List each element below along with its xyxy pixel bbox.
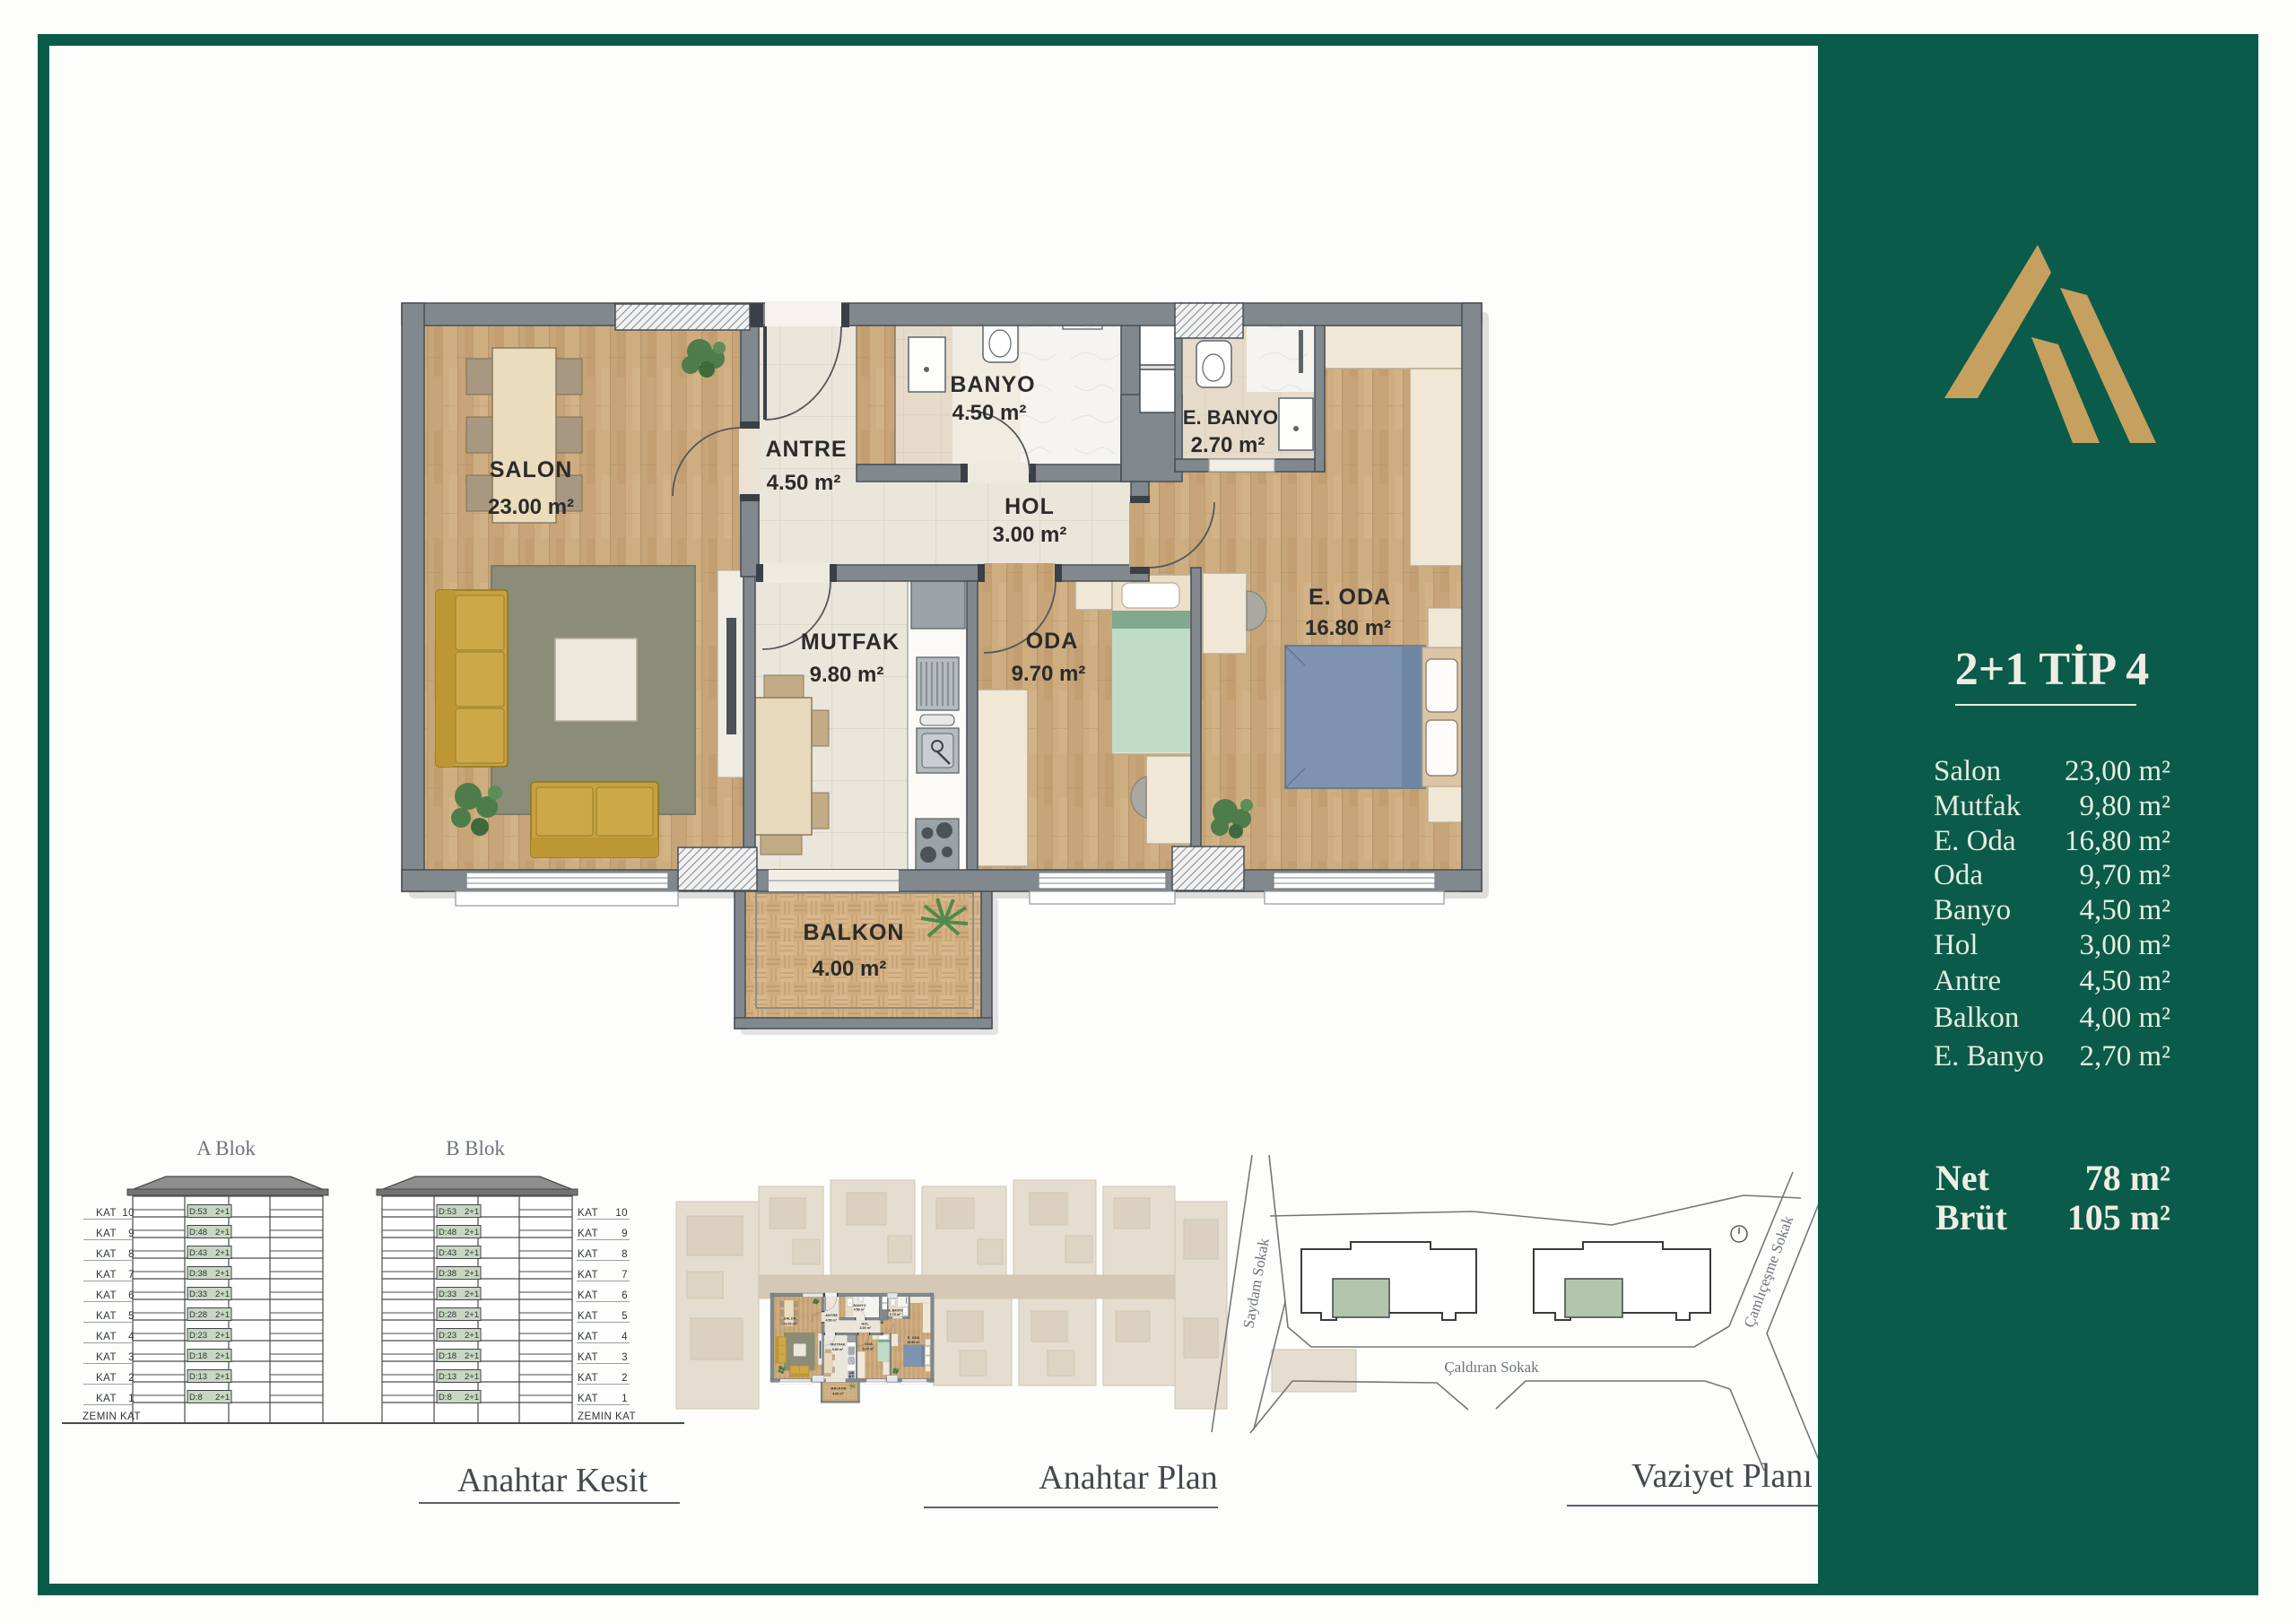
svg-text:KAT: KAT	[96, 1249, 117, 1260]
svg-text:2.70 m²: 2.70 m²	[1191, 433, 1265, 457]
svg-text:2+1: 2+1	[465, 1290, 479, 1299]
svg-text:D:8: D:8	[439, 1393, 452, 1403]
svg-text:ANTRE: ANTRE	[765, 437, 847, 462]
svg-text:10: 10	[615, 1208, 628, 1219]
svg-text:SALON: SALON	[490, 457, 573, 482]
svg-text:23.00 m²: 23.00 m²	[488, 495, 574, 519]
svg-text:3: 3	[622, 1352, 628, 1363]
svg-text:4: 4	[622, 1332, 628, 1342]
svg-text:Net: Net	[1935, 1158, 1990, 1198]
svg-text:E. ODA: E. ODA	[1309, 585, 1391, 610]
svg-text:Brüt: Brüt	[1935, 1197, 2008, 1238]
svg-text:Vaziyet Planı: Vaziyet Planı	[1631, 1457, 1813, 1495]
svg-text:2+1: 2+1	[465, 1248, 479, 1258]
svg-text:2+1: 2+1	[215, 1393, 230, 1403]
svg-text:1: 1	[622, 1394, 628, 1404]
svg-text:KAT: KAT	[578, 1332, 598, 1342]
svg-text:D:28: D:28	[189, 1310, 207, 1320]
svg-text:KAT: KAT	[96, 1229, 117, 1239]
svg-text:2+1: 2+1	[215, 1228, 230, 1238]
svg-text:Antre: Antre	[1934, 965, 2001, 997]
svg-text:KAT: KAT	[96, 1290, 117, 1301]
svg-text:2+1: 2+1	[465, 1207, 479, 1217]
svg-text:KAT: KAT	[578, 1290, 598, 1301]
svg-text:D:33: D:33	[189, 1290, 207, 1299]
svg-text:KAT: KAT	[578, 1229, 598, 1239]
svg-text:4.00 m²: 4.00 m²	[813, 957, 887, 981]
svg-text:D:53: D:53	[189, 1207, 207, 1217]
svg-text:Saydam Sokak: Saydam Sokak	[1239, 1237, 1272, 1330]
svg-text:9: 9	[128, 1229, 135, 1239]
svg-text:1: 1	[128, 1394, 135, 1404]
svg-text:4,50 m²: 4,50 m²	[2079, 965, 2170, 997]
svg-text:Mutfak: Mutfak	[1934, 790, 2022, 822]
svg-text:D:28: D:28	[439, 1310, 457, 1320]
svg-text:KAT: KAT	[578, 1270, 598, 1281]
svg-text:D:18: D:18	[189, 1351, 207, 1361]
svg-text:7: 7	[622, 1270, 628, 1281]
svg-text:4: 4	[128, 1332, 135, 1342]
svg-text:4.50 m²: 4.50 m²	[952, 401, 1027, 425]
svg-text:D:48: D:48	[439, 1228, 457, 1238]
svg-text:B Blok: B Blok	[446, 1137, 505, 1159]
svg-text:KAT: KAT	[578, 1352, 598, 1363]
svg-text:D:8: D:8	[189, 1393, 203, 1403]
svg-text:KAT: KAT	[578, 1249, 598, 1260]
svg-text:6: 6	[622, 1290, 628, 1301]
svg-text:KAT: KAT	[96, 1332, 117, 1342]
svg-text:D:38: D:38	[439, 1269, 457, 1279]
svg-text:6: 6	[128, 1290, 135, 1301]
svg-text:2+1: 2+1	[215, 1310, 230, 1320]
svg-text:Balkon: Balkon	[1934, 1002, 2019, 1034]
svg-text:10: 10	[122, 1208, 135, 1219]
svg-text:2+1: 2+1	[215, 1248, 230, 1258]
svg-text:2: 2	[128, 1373, 135, 1384]
svg-text:D:43: D:43	[189, 1248, 207, 1258]
svg-text:2+1: 2+1	[465, 1351, 479, 1361]
svg-text:8: 8	[128, 1249, 135, 1260]
svg-text:BANYO: BANYO	[950, 372, 1035, 397]
svg-text:9: 9	[622, 1229, 628, 1239]
svg-text:Salon: Salon	[1934, 755, 2001, 787]
svg-text:HOL: HOL	[1004, 494, 1055, 519]
svg-text:78 m²: 78 m²	[2085, 1158, 2170, 1198]
svg-text:D:43: D:43	[439, 1248, 457, 1258]
svg-text:2+1: 2+1	[465, 1269, 479, 1279]
svg-text:KAT: KAT	[578, 1373, 598, 1384]
svg-text:KAT: KAT	[578, 1311, 598, 1322]
svg-text:2,70 m²: 2,70 m²	[2079, 1040, 2170, 1073]
svg-text:2+1: 2+1	[215, 1372, 230, 1382]
svg-text:105 m²: 105 m²	[2067, 1197, 2170, 1238]
svg-text:D:13: D:13	[189, 1372, 207, 1382]
svg-text:4.50 m²: 4.50 m²	[767, 471, 841, 495]
svg-text:D:13: D:13	[439, 1372, 457, 1382]
svg-text:BALKON: BALKON	[804, 920, 905, 945]
svg-text:D:18: D:18	[439, 1351, 457, 1361]
svg-text:KAT: KAT	[96, 1208, 117, 1219]
svg-text:4,00 m²: 4,00 m²	[2079, 1002, 2170, 1034]
svg-text:KAT: KAT	[96, 1270, 117, 1281]
svg-text:4,50 m²: 4,50 m²	[2079, 894, 2170, 926]
svg-text:2+1: 2+1	[215, 1269, 230, 1279]
svg-text:3.00 m²: 3.00 m²	[993, 523, 1067, 547]
svg-text:Anahtar Plan: Anahtar Plan	[1039, 1459, 1217, 1497]
svg-text:E. Banyo: E. Banyo	[1934, 1040, 2044, 1073]
svg-text:KAT: KAT	[578, 1208, 598, 1219]
svg-text:MUTFAK: MUTFAK	[801, 630, 900, 655]
svg-text:2+1: 2+1	[465, 1228, 479, 1238]
svg-text:3: 3	[128, 1352, 135, 1363]
svg-text:D:33: D:33	[439, 1290, 457, 1299]
svg-text:2+1: 2+1	[215, 1351, 230, 1361]
svg-text:16.80 m²: 16.80 m²	[1305, 616, 1391, 640]
svg-text:2+1: 2+1	[465, 1372, 479, 1382]
svg-text:7: 7	[128, 1270, 135, 1281]
svg-text:ZEMIN KAT: ZEMIN KAT	[83, 1411, 141, 1422]
svg-text:2: 2	[622, 1373, 628, 1384]
svg-text:KAT: KAT	[578, 1394, 598, 1404]
svg-text:Çaldıran Sokak: Çaldıran Sokak	[1444, 1359, 1539, 1376]
svg-text:E. Oda: E. Oda	[1934, 825, 2016, 857]
svg-text:5: 5	[128, 1311, 135, 1322]
svg-text:D:38: D:38	[189, 1269, 207, 1279]
svg-text:2+1: 2+1	[215, 1331, 230, 1341]
svg-text:KAT: KAT	[96, 1352, 117, 1363]
svg-text:D:23: D:23	[439, 1331, 457, 1341]
svg-text:ZEMIN KAT: ZEMIN KAT	[578, 1411, 636, 1422]
svg-text:ODA: ODA	[1026, 629, 1079, 654]
svg-text:8: 8	[622, 1249, 628, 1260]
svg-text:2+1 TİP 4: 2+1 TİP 4	[1955, 644, 2150, 695]
svg-text:D:48: D:48	[189, 1228, 207, 1238]
svg-text:2+1: 2+1	[465, 1393, 479, 1403]
svg-text:KAT: KAT	[96, 1373, 117, 1384]
svg-text:9,70 m²: 9,70 m²	[2079, 859, 2170, 891]
svg-text:9.80 m²: 9.80 m²	[810, 663, 884, 687]
svg-text:Anahtar Kesit: Anahtar Kesit	[457, 1462, 648, 1499]
svg-text:3,00 m²: 3,00 m²	[2079, 929, 2170, 961]
svg-text:9.70 m²: 9.70 m²	[1012, 662, 1086, 686]
svg-text:D:23: D:23	[189, 1331, 207, 1341]
svg-text:Banyo: Banyo	[1934, 894, 2011, 926]
svg-text:5: 5	[622, 1311, 628, 1322]
svg-text:2+1: 2+1	[465, 1310, 479, 1320]
svg-text:Hol: Hol	[1934, 929, 1979, 961]
svg-text:2+1: 2+1	[215, 1207, 230, 1217]
svg-text:2+1: 2+1	[465, 1331, 479, 1341]
svg-text:KAT: KAT	[96, 1311, 117, 1322]
svg-text:D:53: D:53	[439, 1207, 457, 1217]
svg-text:23,00 m²: 23,00 m²	[2065, 755, 2170, 787]
svg-text:9,80 m²: 9,80 m²	[2079, 790, 2170, 822]
svg-text:A Blok: A Blok	[196, 1137, 256, 1159]
svg-text:2+1: 2+1	[215, 1290, 230, 1299]
svg-text:E. BANYO: E. BANYO	[1183, 406, 1278, 429]
svg-text:KAT: KAT	[96, 1394, 117, 1404]
svg-text:Oda: Oda	[1934, 859, 1983, 891]
svg-text:16,80 m²: 16,80 m²	[2065, 825, 2170, 857]
